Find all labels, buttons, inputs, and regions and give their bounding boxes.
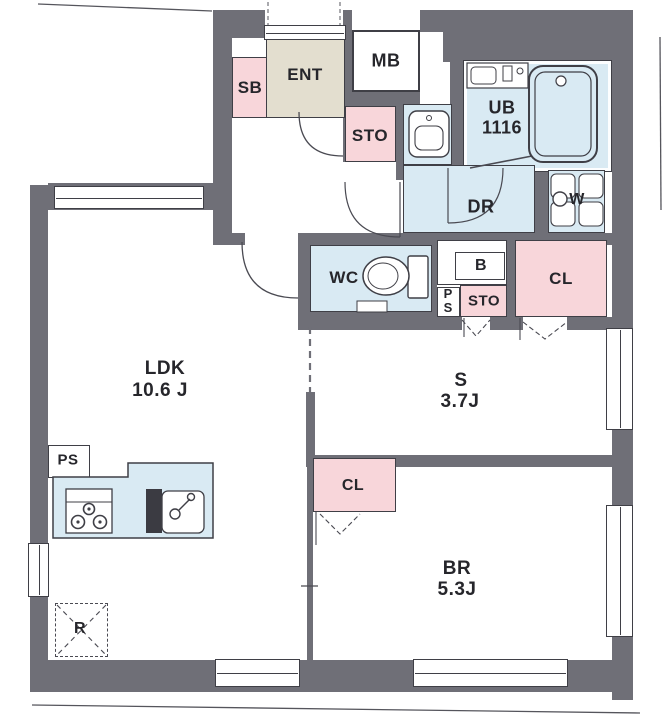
washbasin-room <box>403 104 452 165</box>
window-br-bottom <box>413 659 568 687</box>
storage-mid-label: STO <box>468 293 500 310</box>
wall-niche-cl <box>507 233 515 317</box>
service-room-label: S <box>454 370 467 392</box>
ldk-label: LDK <box>145 358 186 380</box>
window-ldk-bottom <box>215 659 300 687</box>
toilet-label: WC <box>329 268 358 288</box>
pipe-space-mid-label: PS <box>442 287 455 315</box>
bath-room <box>463 60 612 172</box>
entrance-leader-lines <box>268 2 340 25</box>
pipe-space-ldk-label: PS <box>57 452 78 469</box>
dressing-room-door-arc <box>345 182 400 237</box>
wall-hall-left <box>213 10 232 245</box>
window-br-right <box>606 505 633 637</box>
window-ldk-left <box>28 543 49 597</box>
window-ldk-top <box>54 186 204 209</box>
wall-mid-stub <box>232 233 245 245</box>
wall-left-lower <box>30 597 48 660</box>
meter-box-label: MB <box>372 51 401 72</box>
board-label: B <box>475 257 487 275</box>
wall-right-mid <box>612 430 633 505</box>
bedroom-label: BR <box>443 558 471 580</box>
boundary-line-top <box>38 4 212 11</box>
bath-size-label: 1116 <box>482 118 522 139</box>
dressing-room-label: DR <box>468 197 495 218</box>
wall-dr-washer <box>535 160 548 240</box>
floor-plan: ENT SB MB STO UB 1116 DR W WC B PS STO C… <box>0 0 672 720</box>
entrance-label: ENT <box>287 65 323 85</box>
closet-s-door-mark <box>523 322 567 339</box>
wall-s-top-b <box>490 317 523 330</box>
ldk-door-arc <box>242 242 298 298</box>
wall-s-top-a <box>298 317 462 330</box>
bath-label: UB <box>489 98 516 119</box>
ldk-area-label: 10.6 J <box>132 380 188 402</box>
storage-mid-door-mark <box>462 320 490 336</box>
closet-s-label: CL <box>549 269 573 289</box>
wall-above-bath <box>443 32 618 62</box>
bedroom-area-label: 5.3J <box>438 579 477 601</box>
toilet-room <box>310 245 432 312</box>
wall-left-upper <box>30 185 48 543</box>
wall-ldk-s <box>306 392 315 458</box>
refrigerator-label: R <box>74 620 86 638</box>
entrance-door <box>264 25 346 40</box>
storage-entrance-label: STO <box>352 126 388 146</box>
boundary-line-bottom <box>32 705 640 713</box>
boundary-line-right <box>660 37 661 210</box>
closet-br-label: CL <box>342 477 364 495</box>
washer-label: W <box>569 191 585 209</box>
entrance-door-arc <box>299 112 343 156</box>
service-room-area-label: 3.7J <box>441 391 480 413</box>
wall-top-right <box>420 10 633 32</box>
window-s-right <box>606 328 633 430</box>
closet-br-door-mark <box>320 514 360 534</box>
shoe-box-label: SB <box>238 78 263 98</box>
